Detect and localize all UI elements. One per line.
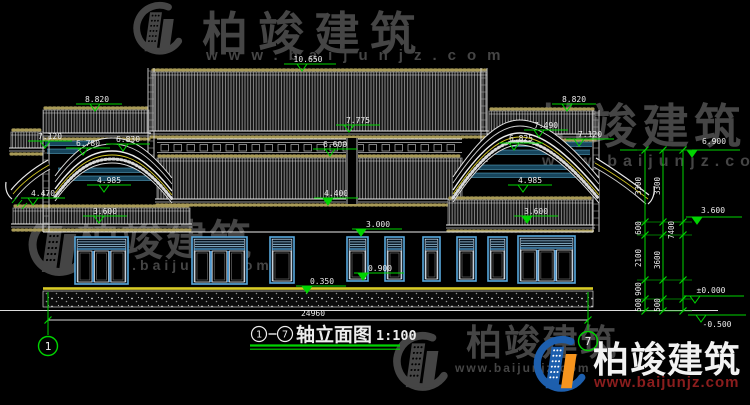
bracket [447,145,455,152]
elevation-marker-3.600: 3.600 [686,206,742,224]
elevation-marker-0.350: 0.350 [296,277,346,293]
bracket [382,145,390,152]
plinth-yellow-band [43,287,593,290]
architrave-band [157,139,462,153]
elevation-marker--0.500: -0.500 [688,315,746,329]
level-value: 6.900 [702,137,726,146]
level-value: 10.650 [294,55,323,64]
level-value: 6.830 [116,135,140,144]
watermark-url-text: www.baijunjz.com [593,374,739,391]
dim-value: 500 [653,298,662,312]
level-value: 3.600 [701,206,725,215]
lower-right-roof [446,198,595,231]
bracket [395,145,403,152]
title-text: 轴立面图 [296,323,372,346]
bracket [200,145,208,152]
vertical-dimension-chain: 33006002100900500330036005007400 [634,147,692,315]
bracket [226,145,234,152]
watermark-top: 柏竣建筑www.baijunjz.com [137,5,512,64]
bracket [304,145,312,152]
axis-number: 7 [585,335,592,348]
level-value: ±0.000 [697,286,726,295]
drawing-title: 17轴立面图1:100 [250,323,417,349]
window-mullion [109,251,111,282]
bracket [252,145,260,152]
level-value: 4.470 [31,189,55,198]
level-value: -0.500 [703,320,732,329]
level-triangle-icon [28,198,38,205]
dim-value: 7400 [667,220,676,239]
bracket [265,145,273,152]
bracket [187,145,195,152]
bracket [161,145,169,152]
level-value: 6.600 [323,140,347,149]
level-value: 4.400 [324,189,348,198]
elevation-drawing: 柏竣建筑www.baijunjz.com柏竣建筑www.baijunjz.com… [0,0,750,405]
bracket [278,145,286,152]
bracket [213,145,221,152]
cad-elevation-screenshot: 柏竣建筑www.baijunjz.com柏竣建筑www.baijunjz.com… [0,0,750,405]
window-mullion [227,251,229,282]
title-scale: 1:100 [376,328,417,344]
main-roof [149,70,489,137]
level-value: 7.775 [346,116,370,125]
level-value: 3.000 [366,220,390,229]
bracket [408,145,416,152]
bracket [239,145,247,152]
level-value: 6.825 [509,134,533,143]
level-value: 3.600 [524,207,548,216]
window-narrow [457,237,476,281]
window-narrow [385,237,404,281]
window-mullion [554,250,556,281]
roof-tile-hatch [448,200,593,225]
roof-tile-hatch [157,158,462,199]
window-panel [426,251,437,279]
window-wide [518,236,575,283]
title-axis-from: 1 [256,330,262,341]
elevation-marker-3.000: 3.000 [352,220,402,236]
level-value: 6.780 [76,139,100,148]
bracket [369,145,377,152]
elevation-marker-±0.000: ±0.000 [684,286,744,303]
door [270,237,294,283]
window-mullion [536,250,538,281]
overall-width-value: 24960 [301,309,325,318]
dim-value: 3600 [653,250,662,269]
dim-value: 900 [634,282,643,296]
level-value: 7.120 [38,132,62,141]
elevation-marker-4.985: 4.985 [508,176,552,192]
baijun-logo-icon [137,5,179,51]
window-wide [192,237,247,284]
dim-value: 500 [634,298,643,312]
level-value: 3.600 [93,207,117,216]
bracket [421,145,429,152]
bracket [174,145,182,152]
window-mullion [92,251,94,282]
axis-number: 1 [45,340,52,353]
level-value: 8.820 [85,95,109,104]
window-panel [273,251,291,281]
dim-value: 2100 [634,248,643,267]
gravel-band [43,291,593,307]
level-value: 0.900 [368,264,392,273]
level-value: 8.820 [562,95,586,104]
ground [0,287,718,310]
level-value: 7.120 [578,130,602,139]
level-triangle-icon [518,185,528,192]
eave-tip-curl [6,182,12,199]
dim-value: 600 [634,221,643,235]
bracket [291,145,299,152]
level-triangle-icon [99,185,109,192]
roof-tile-hatch [43,110,149,133]
level-value: 4.985 [97,176,121,185]
level-value: 7.490 [534,121,558,130]
window-mullion [210,251,212,282]
dim-value: 3300 [653,176,662,195]
level-value: 4.985 [518,176,542,185]
dim-value: 3300 [634,176,643,195]
roof-tile-hatch [151,72,487,131]
level-value: 0.350 [310,277,334,286]
window-wide [75,237,128,284]
window-narrow [488,237,507,281]
title-axis-to: 7 [282,330,288,341]
level-triangle-icon [690,296,700,303]
second-tier-roof [155,156,464,205]
bracket [434,145,442,152]
window-narrow [423,237,440,281]
watermark-url-text: www.baijunjz.com [205,47,511,64]
level-triangle-icon [692,217,702,224]
